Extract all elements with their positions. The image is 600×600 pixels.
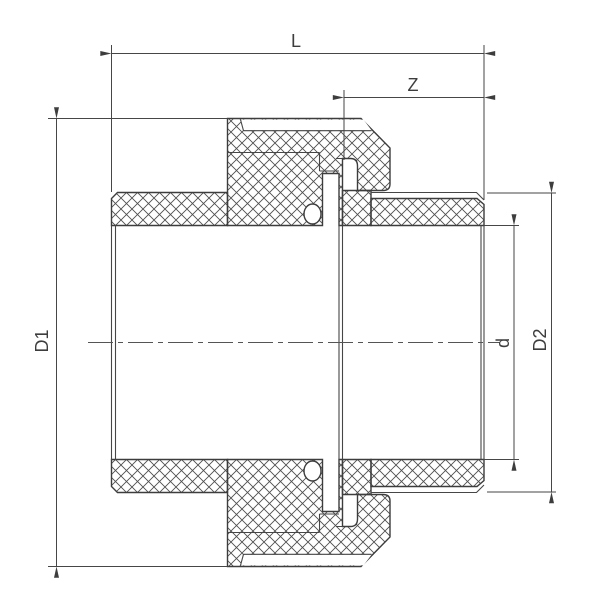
male-end-face-lines xyxy=(339,226,343,343)
D1-label: D1 xyxy=(32,329,52,352)
left-end-face-lines xyxy=(112,226,116,343)
dimension-D2: D2 xyxy=(530,193,552,492)
L-label: L xyxy=(291,31,301,51)
nut-top-land xyxy=(241,120,372,131)
Z-label: Z xyxy=(408,75,419,95)
left-socket-section xyxy=(112,193,228,226)
right-spigot-collar-section xyxy=(371,199,484,226)
dimension-D1: D1 xyxy=(32,119,57,567)
technical-drawing-page: L Z D1 d D2 xyxy=(0,0,600,600)
fitting-body-half-section xyxy=(48,119,556,343)
d-label: d xyxy=(493,338,513,348)
D2-label: D2 xyxy=(530,328,550,351)
fitting-body-mirrored-half xyxy=(48,343,556,567)
right-spigot-wall-section xyxy=(343,191,372,226)
union-fitting-drawing-canvas: L Z D1 d D2 xyxy=(0,0,600,600)
dimension-d: d xyxy=(493,226,514,460)
o-ring-seal xyxy=(304,204,321,224)
